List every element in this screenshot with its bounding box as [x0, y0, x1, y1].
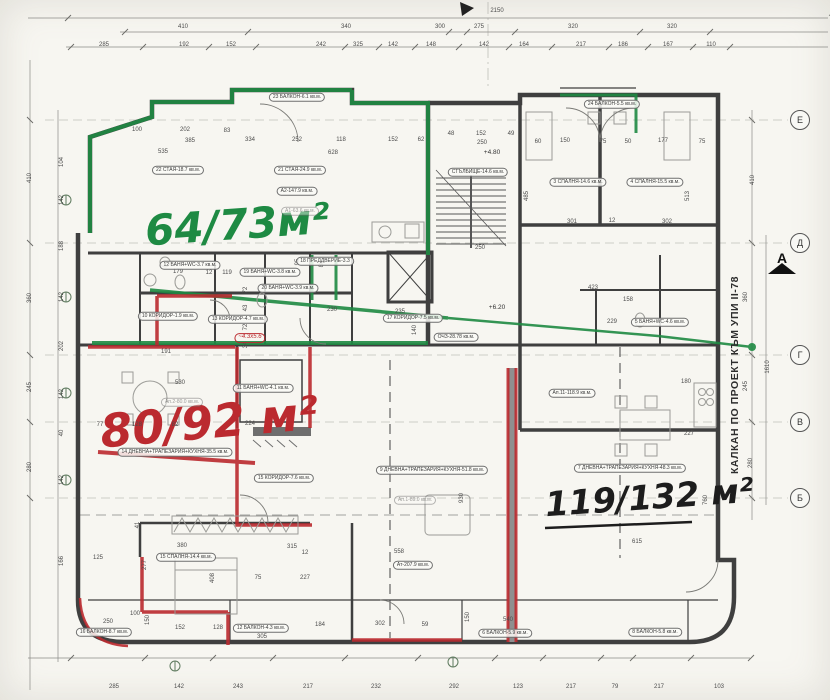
- dimension-label: 75: [600, 139, 607, 145]
- dimension-label: 188: [59, 241, 65, 251]
- room-label: 8 БАЛКОН-5.8 кв.м.: [628, 628, 682, 637]
- dimension-label: 83: [224, 128, 231, 134]
- room-label: 12 БАЛКОН-4.3 кв.м.: [233, 624, 289, 633]
- dimension-label: 360: [743, 292, 749, 302]
- dimension-label: 292: [449, 684, 459, 690]
- dimension-label: 158: [623, 297, 633, 303]
- dimension-label: 142: [59, 389, 65, 399]
- dimension-label: 513: [685, 191, 691, 201]
- dimension-label: 760: [703, 495, 709, 505]
- room-label: Ат-207.9 кв.м.: [393, 561, 433, 570]
- dimension-label: 140: [412, 325, 418, 335]
- dimension-label: 242: [316, 42, 326, 48]
- dimension-label: 164: [519, 42, 529, 48]
- dimension-label: 75: [699, 139, 706, 145]
- furniture: [122, 112, 716, 614]
- room-label: Ап.11-118.9 кв.м.: [549, 389, 596, 398]
- dimension-label: 142: [59, 292, 65, 302]
- dimension-label: 615: [632, 539, 642, 545]
- dimension-label: 100: [130, 611, 140, 617]
- dimension-label: 50: [625, 139, 632, 145]
- dimension-label: 224: [245, 421, 255, 427]
- room-label: 16 БАЛКОН-8.7 кв.м.: [76, 628, 132, 637]
- axis-marker-В: В: [790, 412, 810, 432]
- room-label: А1-63.6 кв.м.: [281, 207, 319, 216]
- dimension-label: 192: [179, 42, 189, 48]
- dimension-label: 60: [535, 139, 542, 145]
- room-label: 23 БАЛКОН-6.1 кв.м.: [269, 93, 325, 102]
- dimension-label: 250: [475, 245, 485, 251]
- dimension-label: 320: [667, 24, 677, 30]
- dimension-label: 250: [103, 619, 113, 625]
- room-label: ~4.3х5.6: [234, 333, 265, 343]
- dimension-label: 340: [341, 24, 351, 30]
- room-label: ОЧЗ-28.78 кв.м.: [434, 333, 479, 342]
- dimension-label: 184: [315, 622, 325, 628]
- dimension-label: 142: [174, 684, 184, 690]
- dimension-label: 930: [459, 493, 465, 503]
- section-marker-label: А: [777, 250, 787, 266]
- dimension-label: 177: [658, 138, 668, 144]
- dimension-label: 40: [59, 430, 65, 437]
- dimension-label: 77: [97, 422, 104, 428]
- room-label: 9 ДНЕВНА+ТРАПЕЗАРИЯ+КУХНЯ-51.8 кв.м.: [376, 466, 488, 475]
- dimension-label: 166: [59, 556, 65, 566]
- dimension-label: 167: [663, 42, 673, 48]
- dimension-label: 360: [27, 293, 33, 303]
- room-label: 18 ПРЕДДВЕРИЕ-3.3: [296, 257, 354, 266]
- room-label: 7 ДНЕВНА+ТРАПЕЗАРИЯ+КУХНЯ-48.3 кв.м.: [574, 464, 686, 473]
- dimension-label: 217: [654, 684, 664, 690]
- dimension-label: 119: [222, 270, 232, 276]
- dimension-label: 227: [300, 575, 310, 581]
- dimension-label: 100: [132, 127, 142, 133]
- dimension-label: 280: [748, 458, 754, 468]
- room-label: 15 СПАЛНЯ-14.4 кв.м.: [156, 553, 216, 562]
- dimension-label: 128: [213, 625, 223, 631]
- side-note-kalkan: КАЛКАН ПО ПРОЕКТ КЪМ УПИ II-78: [729, 276, 741, 474]
- room-label: 10 КОРИДОР-1.9 кв.м.: [138, 312, 198, 321]
- dimension-label: 305: [257, 634, 267, 640]
- dimension-label: 150: [145, 615, 151, 625]
- dimension-label: 142: [59, 475, 65, 485]
- room-label: А2-147.9 кв.м.: [277, 187, 318, 196]
- dimension-label: 408: [210, 573, 216, 583]
- dimension-label: 217: [566, 684, 576, 690]
- dimension-label: 125: [93, 555, 103, 561]
- dimension-label: 41: [135, 522, 141, 529]
- dimension-label: 530: [175, 380, 185, 386]
- dimension-label: 186: [618, 42, 628, 48]
- dimension-label: 150: [465, 612, 471, 622]
- room-label: 6 БАЛКОН-5.9 кв.м.: [478, 629, 532, 638]
- dimension-label: 152: [175, 625, 185, 631]
- dimension-label: 123: [513, 684, 523, 690]
- dimension-label: 12: [609, 218, 616, 224]
- dimension-label: 202: [59, 341, 65, 351]
- dimension-label: 128: [132, 422, 142, 428]
- dimension-label: 72: [243, 324, 249, 331]
- room-label: 22 СТАЯ-18.7 кв.м.: [152, 166, 204, 175]
- room-label: 19 БАНЯ+WC-3.8 кв.м.: [240, 268, 301, 277]
- room-label: 15 КОРИДОР-7.6 кв.м.: [254, 474, 314, 483]
- north-arrow: [460, 2, 474, 16]
- dimension-label: 72: [243, 287, 249, 294]
- dimension-label: 540: [503, 617, 513, 623]
- dimension-label: 110: [706, 42, 716, 48]
- dimension-label: 301: [567, 219, 577, 225]
- dimension-label: 180: [681, 379, 691, 385]
- dimension-label: 285: [99, 42, 109, 48]
- room-label: +6.20: [486, 304, 508, 312]
- dimension-label: 1610: [765, 360, 771, 373]
- dimension-label: 152: [476, 131, 486, 137]
- dimension-label: 320: [568, 24, 578, 30]
- axis-marker-Д: Д: [790, 233, 810, 253]
- dimension-label: 410: [27, 173, 33, 183]
- dimension-label: 152: [388, 137, 398, 143]
- axis-marker-Е: Е: [790, 110, 810, 130]
- dimension-label: 217: [576, 42, 586, 48]
- dimension-label: 79: [612, 684, 619, 690]
- dimension-label: 142: [388, 42, 398, 48]
- staircase: [436, 170, 506, 248]
- dimension-label: 49: [508, 131, 515, 137]
- room-label: 17 КОРИДОР-7.5 кв.м.: [383, 314, 443, 323]
- room-label: 11 БАНЯ+WC-4.1 кв.м.: [233, 384, 294, 393]
- dimension-label: 48: [448, 131, 455, 137]
- dimension-label: 59: [422, 622, 429, 628]
- dimension-label: 191: [161, 349, 171, 355]
- dimension-label: 118: [336, 137, 346, 143]
- dimension-label: 142: [59, 195, 65, 205]
- room-label: Ап.1-89.0 кв.м.: [394, 496, 436, 505]
- room-label: Ап.2-80.0 кв.м.: [161, 398, 203, 407]
- dimension-label: 558: [394, 549, 404, 555]
- dimension-label: 385: [185, 138, 195, 144]
- dimension-label: 12: [206, 270, 213, 276]
- dimension-label: 75: [255, 575, 262, 581]
- dimension-label: 82: [172, 422, 179, 428]
- room-label: СТЪЛБИЩЕ-14.6 кв.м.: [448, 168, 508, 177]
- dimension-label: 410: [750, 175, 756, 185]
- dimension-label: 103: [714, 684, 724, 690]
- dimension-label: 227: [684, 431, 694, 437]
- dimension-label: 12: [302, 550, 309, 556]
- dimension-label: 104: [59, 157, 65, 167]
- dimension-label: 380: [177, 543, 187, 549]
- dimension-label: 148: [426, 42, 436, 48]
- dimension-label: 485: [524, 191, 530, 201]
- dimension-label: 245: [743, 381, 749, 391]
- room-label: 5 БАНЯ+WC-4.6 кв.м.: [631, 318, 689, 327]
- dimension-label: 252: [292, 137, 302, 143]
- axis-marker-Б: Б: [790, 488, 810, 508]
- room-label: +4.80: [481, 149, 503, 157]
- dimension-label: 150: [560, 138, 570, 144]
- dimension-label: 229: [607, 319, 617, 325]
- axis-marker-Г: Г: [790, 345, 810, 365]
- dimension-label: 275: [474, 24, 484, 30]
- dimension-label: 250: [477, 140, 487, 146]
- dimension-label: 2150: [490, 8, 503, 14]
- dimension-label: 62: [418, 137, 425, 143]
- room-label: 13 КОРИДОР-4.7 кв.м.: [208, 315, 268, 324]
- scanned-floor-plan: 64/73м² 80/92 м² 119/132 м² КАЛКАН ПО ПР…: [0, 0, 830, 700]
- room-label: 3 СПАЛНЯ-14.6 кв.м.: [549, 178, 606, 187]
- dimension-label: 43: [243, 305, 249, 312]
- dimension-label: 277: [142, 560, 148, 570]
- room-label: 20 БАНЯ+WC-3.9 кв.м.: [258, 284, 319, 293]
- room-label: 12 БАНЯ+WC-3.7 кв.м.: [160, 261, 221, 270]
- elevator-shaft: [388, 252, 432, 302]
- dimension-label: 230: [327, 307, 337, 313]
- floor-plan-drawing: [0, 0, 830, 700]
- room-label: 4 СПАЛНЯ-15.5 кв.м.: [626, 178, 683, 187]
- dimension-label: 243: [233, 684, 243, 690]
- dimension-label: 325: [353, 42, 363, 48]
- dimension-label: 202: [180, 127, 190, 133]
- dimension-label: 628: [328, 150, 338, 156]
- dimension-label: 302: [662, 219, 672, 225]
- dimension-label: 179: [173, 269, 183, 275]
- dimension-label: 410: [178, 24, 188, 30]
- room-label: 24 БАЛКОН-5.5 кв.м.: [584, 100, 640, 109]
- room-label: 14 ДНЕВНА+ТРАПЕЗАРИЯ+КУХНЯ-35.5 кв.м.: [118, 448, 233, 457]
- dimension-label: 142: [479, 42, 489, 48]
- dimension-label: 232: [371, 684, 381, 690]
- dimension-label: 334: [245, 137, 255, 143]
- dimension-label: 300: [435, 24, 445, 30]
- dimension-label: 217: [303, 684, 313, 690]
- dimension-label: 285: [109, 684, 119, 690]
- dimension-label: 245: [27, 382, 33, 392]
- dimension-label: 423: [588, 285, 598, 291]
- dimension-label: 152: [226, 42, 236, 48]
- dimension-label: 315: [287, 544, 297, 550]
- dimension-label: 302: [375, 621, 385, 627]
- dimension-label: 535: [158, 149, 168, 155]
- dimension-label: 280: [27, 462, 33, 472]
- room-label: 21 СТАЯ-24.9 кв.м.: [274, 166, 326, 175]
